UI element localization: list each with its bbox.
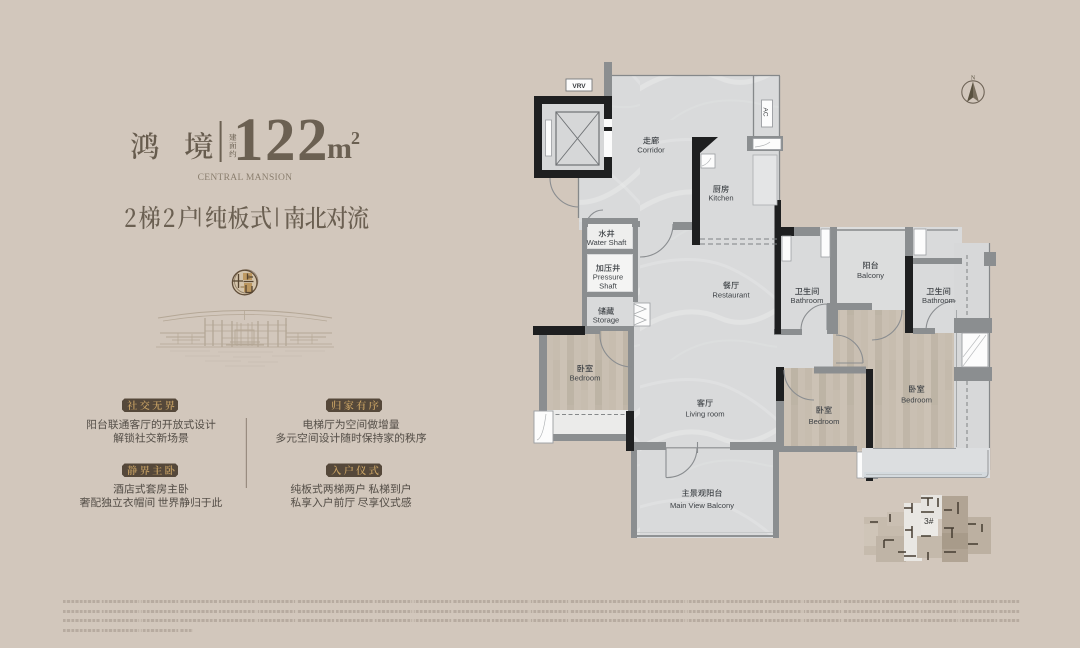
- svg-text:CENTRAL MANSION: CENTRAL MANSION: [198, 173, 293, 183]
- svg-text:m: m: [327, 132, 352, 165]
- svg-text:Pressure: Pressure: [593, 273, 623, 282]
- svg-text:Bathroom: Bathroom: [791, 296, 824, 305]
- svg-text:122: 122: [233, 107, 329, 174]
- svg-text:VRV: VRV: [572, 83, 586, 90]
- svg-text:Balcony: Balcony: [857, 271, 884, 280]
- svg-text:Bathroom: Bathroom: [922, 296, 955, 305]
- svg-text:Shaft: Shaft: [599, 282, 618, 291]
- svg-text:Storage: Storage: [593, 316, 620, 325]
- svg-text:Water Shaft: Water Shaft: [587, 238, 628, 247]
- svg-text:Bedroom: Bedroom: [809, 417, 840, 426]
- svg-text:Main View Balcony: Main View Balcony: [670, 501, 734, 510]
- svg-text:Bedroom: Bedroom: [901, 396, 932, 405]
- svg-text:Kitchen: Kitchen: [708, 194, 733, 203]
- svg-text:N: N: [971, 76, 976, 82]
- svg-text:AC: AC: [762, 108, 769, 117]
- svg-text:Corridor: Corridor: [637, 146, 665, 155]
- svg-text:2: 2: [351, 128, 360, 148]
- svg-text:Restaurant: Restaurant: [712, 291, 750, 300]
- svg-text:3#: 3#: [924, 516, 934, 526]
- svg-text:Living room: Living room: [685, 410, 724, 419]
- svg-text:Bedroom: Bedroom: [570, 374, 601, 383]
